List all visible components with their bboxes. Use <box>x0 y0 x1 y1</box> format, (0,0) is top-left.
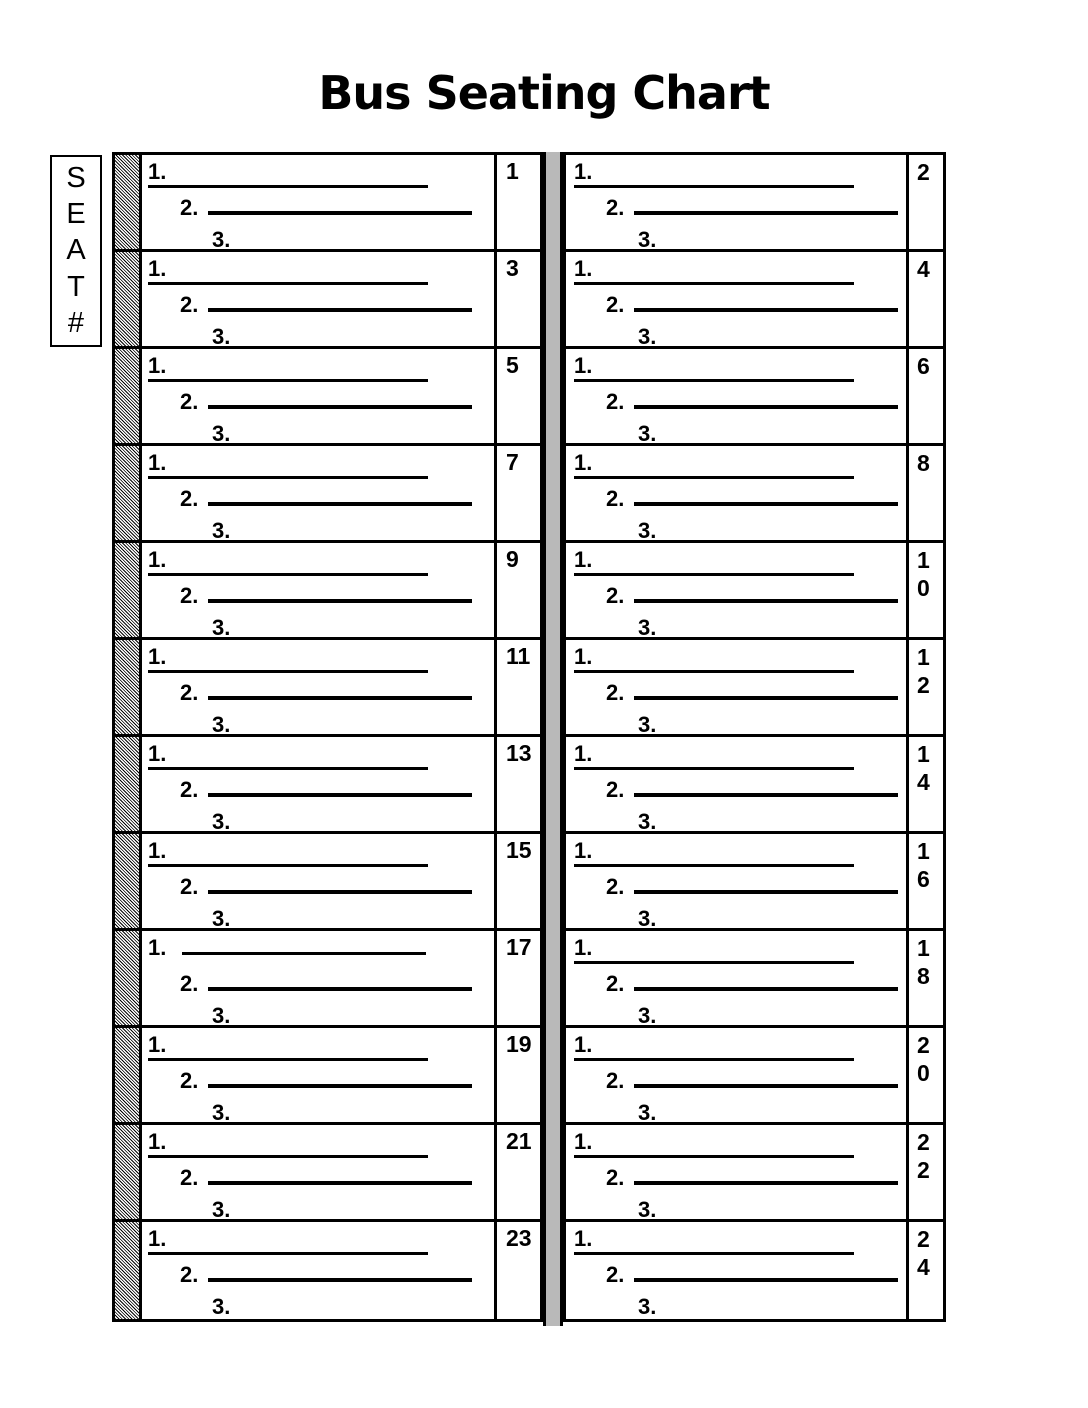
seat-line-2: 2. <box>606 290 906 324</box>
line-label: 1. <box>574 256 592 281</box>
name-blank-line: 1. <box>574 547 854 576</box>
bus-aisle <box>543 152 563 1326</box>
line-label: 1. <box>148 838 166 863</box>
seat-row: 1.2.3.2 0 <box>566 1028 943 1125</box>
seat-line-1: 1. <box>574 1226 906 1260</box>
driver-side-hatch-strip <box>115 834 142 928</box>
line-label: 1. <box>148 256 166 281</box>
line-label: 1. <box>148 547 166 572</box>
line-label: 3. <box>212 712 230 737</box>
seat-row: 1.2.3.1 4 <box>566 737 943 834</box>
seat-row: 1.2.3.1 <box>115 155 540 252</box>
name-blank-line: 1. <box>574 644 854 673</box>
name-blank-line <box>208 775 472 797</box>
line-label: 1. <box>148 1226 166 1251</box>
seat-box: 1.2.3. <box>142 1222 494 1319</box>
name-blank-line <box>208 1163 472 1185</box>
name-blank-line <box>208 872 472 894</box>
line-label: 3. <box>212 324 230 349</box>
name-blank-line: 1. <box>148 1032 428 1061</box>
name-blank-line <box>208 1066 472 1088</box>
name-blank-line <box>634 290 898 312</box>
seat-legend-letter: E <box>66 200 85 229</box>
seat-line-2: 2. <box>606 1066 906 1100</box>
seat-line-2: 2. <box>180 484 494 518</box>
name-blank-line: 1. <box>574 1129 854 1158</box>
name-blank-line: 1. <box>574 1032 854 1061</box>
seat-box: 1.2.3. <box>566 737 906 831</box>
line-label: 1. <box>574 741 592 766</box>
seat-line-1: 1. <box>574 935 906 969</box>
seat-line-1: 1. <box>574 838 906 872</box>
seat-row: 1.2.3.7 <box>115 446 540 543</box>
seat-row: 1.2.3.5 <box>115 349 540 446</box>
line-label: 3. <box>212 906 230 931</box>
line-label: 3. <box>638 1294 656 1319</box>
line-label: 1. <box>574 1129 592 1154</box>
seat-line-2: 2. <box>606 969 906 1003</box>
name-blank-line: 1. <box>148 1226 428 1255</box>
seat-box: 1.2.3. <box>566 543 906 637</box>
name-blank-line <box>634 678 898 700</box>
seat-row: 1.2.3.1 2 <box>566 640 943 737</box>
name-blank-line: 1. <box>574 741 854 770</box>
line-label: 2. <box>606 777 624 802</box>
seat-line-1: 1. <box>574 547 906 581</box>
name-blank-line: 1. <box>574 935 854 964</box>
seat-line-2: 2. <box>180 193 494 227</box>
seat-line-1: 1. <box>574 159 906 193</box>
seat-line-1: 1. <box>574 1129 906 1163</box>
seat-row: 1.2.3.6 <box>566 349 943 446</box>
line-label: 1. <box>574 450 592 475</box>
seating-chart: 1.2.3.11.2.3.31.2.3.51.2.3.71.2.3.91.2.3… <box>112 152 946 1322</box>
name-blank-line <box>208 484 472 506</box>
seat-number: 6 <box>906 349 943 443</box>
seat-line-1: 1. <box>148 450 494 484</box>
seat-number: 11 <box>494 640 540 734</box>
name-blank-line: 1. <box>148 838 428 867</box>
name-blank-line <box>634 484 898 506</box>
line-label: 3. <box>212 421 230 446</box>
line-label: 3. <box>212 1100 230 1125</box>
seat-number: 15 <box>494 834 540 928</box>
line-label: 2. <box>606 1262 624 1287</box>
line-label: 3. <box>212 1294 230 1319</box>
seat-line-3: 3. <box>638 1294 906 1328</box>
name-blank-line <box>208 581 472 603</box>
driver-side-hatch-strip <box>115 640 142 734</box>
seat-box: 1.2.3. <box>142 640 494 734</box>
line-label: 2. <box>606 874 624 899</box>
seat-row: 1.2.3.2 4 <box>566 1222 943 1319</box>
line-label: 2. <box>180 1068 198 1093</box>
seat-line-1: 1. <box>148 353 494 387</box>
seat-number: 1 4 <box>906 737 943 831</box>
line-label: 3. <box>638 1003 656 1028</box>
seat-number-legend: S E A T # <box>50 155 102 347</box>
line-label: 1. <box>574 159 592 184</box>
line-label: 2. <box>180 1165 198 1190</box>
seat-number: 4 <box>906 252 943 346</box>
name-blank-line <box>208 1260 472 1282</box>
seat-line-1: 1. <box>148 1129 494 1163</box>
name-blank-line <box>634 1260 898 1282</box>
seat-number: 13 <box>494 737 540 831</box>
seat-row: 1.2.3.19 <box>115 1028 540 1125</box>
seat-line-1: 1. <box>574 741 906 775</box>
seat-box: 1.2.3. <box>142 1125 494 1219</box>
name-blank-line: 1. <box>574 1226 854 1255</box>
line-label: 1. <box>148 1032 166 1057</box>
seat-box: 1.2.3. <box>566 1222 906 1319</box>
driver-side-hatch-strip <box>115 1222 142 1319</box>
line-label: 2. <box>180 1262 198 1287</box>
driver-side-hatch-strip <box>115 1028 142 1122</box>
seat-row: 1.2.3.1 6 <box>566 834 943 931</box>
line-label: 3. <box>638 712 656 737</box>
seat-line-2: 2. <box>606 387 906 421</box>
name-blank-line <box>208 678 472 700</box>
name-blank-line <box>634 1163 898 1185</box>
driver-side-hatch-strip <box>115 155 142 249</box>
line-label: 3. <box>638 615 656 640</box>
line-label: 2. <box>606 971 624 996</box>
seat-legend-letter: # <box>68 309 84 338</box>
seat-line-1: 1. <box>574 450 906 484</box>
name-blank-line: 1. <box>148 353 428 382</box>
seat-box: 1.2.3. <box>566 640 906 734</box>
seat-number: 17 <box>494 931 540 1025</box>
line-label: 2. <box>180 680 198 705</box>
seat-line-2: 2. <box>606 1163 906 1197</box>
seat-line-1: 1. <box>574 1032 906 1066</box>
driver-side-hatch-strip <box>115 349 142 443</box>
seat-line-2: 2. <box>180 290 494 324</box>
seat-box: 1.2.3. <box>566 1125 906 1219</box>
name-blank-line: 1. <box>574 353 854 382</box>
line-label: 1. <box>574 838 592 863</box>
seat-number: 5 <box>494 349 540 443</box>
seat-box: 1.2.3. <box>142 349 494 443</box>
line-label: 2. <box>606 292 624 317</box>
seat-line-1: 1. <box>574 256 906 290</box>
seat-box: 1.2.3. <box>566 1028 906 1122</box>
line-label: 1. <box>574 644 592 669</box>
seat-number: 1 <box>494 155 540 249</box>
seat-row: 1.2.3.9 <box>115 543 540 640</box>
seat-line-1: 1. <box>148 644 494 678</box>
name-blank-line <box>634 387 898 409</box>
line-label: 1. <box>574 1032 592 1057</box>
seat-row: 1.2.3.2 2 <box>566 1125 943 1222</box>
line-label: 3. <box>638 518 656 543</box>
driver-side-hatch-strip <box>115 1125 142 1219</box>
seat-line-2: 2. <box>180 1066 494 1100</box>
seat-line-2: 2. <box>180 581 494 615</box>
seat-line-1: 1. <box>148 1226 494 1260</box>
name-blank-line: 1. <box>148 159 428 188</box>
seat-number: 1 8 <box>906 931 943 1025</box>
line-label: 1. <box>574 935 592 960</box>
name-blank-line: 1. <box>148 1129 428 1158</box>
line-label: 2. <box>180 292 198 317</box>
seat-line-2: 2. <box>180 872 494 906</box>
seat-line-1: 1. <box>574 644 906 678</box>
line-label: 3. <box>212 227 230 252</box>
seat-box: 1.2.3. <box>142 155 494 249</box>
seat-row: 1.2.3.15 <box>115 834 540 931</box>
line-label: 1. <box>148 644 166 669</box>
name-blank-line: 1. <box>148 644 428 673</box>
seat-line-2: 2. <box>180 1260 494 1294</box>
line-label: 1. <box>148 741 166 766</box>
name-blank-line: 1. <box>574 838 854 867</box>
seat-line-1: 1. <box>148 547 494 581</box>
name-blank-line <box>634 193 898 215</box>
line-label: 3. <box>638 421 656 446</box>
seat-number: 2 2 <box>906 1125 943 1219</box>
seat-line-1: 1. <box>574 353 906 387</box>
driver-side-hatch-strip <box>115 737 142 831</box>
name-blank-line: 1. <box>574 159 854 188</box>
seat-line-1: 1. <box>148 838 494 872</box>
name-blank-line <box>208 193 472 215</box>
seat-box: 1.2.3. <box>566 349 906 443</box>
seat-box: 1.2.3. <box>566 155 906 249</box>
seat-line-1: 1. <box>148 935 494 969</box>
seat-box: 1.2.3. <box>566 931 906 1025</box>
left-seat-table: 1.2.3.11.2.3.31.2.3.51.2.3.71.2.3.91.2.3… <box>112 152 543 1322</box>
seat-line-2: 2. <box>606 484 906 518</box>
line-label: 2. <box>606 195 624 220</box>
seat-row: 1.2.3.8 <box>566 446 943 543</box>
driver-side-hatch-strip <box>115 252 142 346</box>
seat-legend-letter: A <box>66 236 85 265</box>
seat-line-2: 2. <box>180 678 494 712</box>
line-label: 2. <box>180 777 198 802</box>
seat-line-2: 2. <box>180 387 494 421</box>
line-label: 1. <box>574 353 592 378</box>
seat-number: 9 <box>494 543 540 637</box>
line-label: 1. <box>574 547 592 572</box>
seat-number: 2 <box>906 155 943 249</box>
seat-box: 1.2.3. <box>142 737 494 831</box>
seat-number: 1 6 <box>906 834 943 928</box>
line-label: 1. <box>148 450 166 475</box>
seat-row: 1.2.3.13 <box>115 737 540 834</box>
seat-number: 19 <box>494 1028 540 1122</box>
line-label: 1. <box>574 1226 592 1251</box>
driver-side-hatch-strip <box>115 543 142 637</box>
line-label: 2. <box>180 195 198 220</box>
driver-side-hatch-strip <box>115 446 142 540</box>
seat-row: 1.2.3.23 <box>115 1222 540 1319</box>
seat-line-2: 2. <box>180 1163 494 1197</box>
seat-box: 1.2.3. <box>566 446 906 540</box>
page-title: Bus Seating Chart <box>0 66 1088 120</box>
name-blank-line <box>208 387 472 409</box>
right-seat-table: 1.2.3.21.2.3.41.2.3.61.2.3.81.2.3.1 01.2… <box>563 152 946 1322</box>
line-label: 2. <box>180 583 198 608</box>
line-label: 2. <box>606 1068 624 1093</box>
seat-box: 1.2.3. <box>566 834 906 928</box>
line-label: 1. <box>148 159 166 184</box>
driver-side-hatch-strip <box>115 931 142 1025</box>
name-blank-line <box>634 775 898 797</box>
seat-legend-letter: T <box>67 273 85 302</box>
seat-number: 21 <box>494 1125 540 1219</box>
seat-line-1: 1. <box>148 741 494 775</box>
seat-number: 8 <box>906 446 943 540</box>
seat-box: 1.2.3. <box>142 834 494 928</box>
seat-box: 1.2.3. <box>142 543 494 637</box>
seat-line-1: 1. <box>148 1032 494 1066</box>
name-blank-line: 1. <box>148 741 428 770</box>
seat-number: 7 <box>494 446 540 540</box>
seat-box: 1.2.3. <box>142 931 494 1025</box>
seat-box: 1.2.3. <box>142 446 494 540</box>
line-label: 1. <box>148 1129 166 1154</box>
seat-row: 1.2.3.3 <box>115 252 540 349</box>
seat-legend-letter: S <box>66 164 85 193</box>
seat-box: 1.2.3. <box>142 252 494 346</box>
seat-number: 1 0 <box>906 543 943 637</box>
name-blank-line <box>182 935 426 955</box>
line-label: 1. <box>148 353 166 378</box>
seat-line-2: 2. <box>606 872 906 906</box>
seat-line-2: 2. <box>606 678 906 712</box>
line-label: 3. <box>638 906 656 931</box>
line-label: 3. <box>638 227 656 252</box>
seat-row: 1.2.3.1 8 <box>566 931 943 1028</box>
seat-row: 1.2.3.17 <box>115 931 540 1028</box>
name-blank-line: 1. <box>148 256 428 285</box>
line-label: 3. <box>212 809 230 834</box>
name-blank-line <box>634 872 898 894</box>
seat-line-3: 3. <box>212 1294 494 1328</box>
line-label: 2. <box>180 486 198 511</box>
line-label: 3. <box>212 1003 230 1028</box>
line-label: 3. <box>212 615 230 640</box>
seat-number: 1 2 <box>906 640 943 734</box>
seat-row: 1.2.3.21 <box>115 1125 540 1222</box>
line-label: 3. <box>638 324 656 349</box>
seat-line-2: 2. <box>180 969 494 1003</box>
seat-box: 1.2.3. <box>142 1028 494 1122</box>
seat-number: 23 <box>494 1222 540 1319</box>
name-blank-line: 1. <box>574 450 854 479</box>
line-label: 1. <box>148 935 166 960</box>
name-blank-line: 1. <box>148 450 428 479</box>
seat-box: 1.2.3. <box>566 252 906 346</box>
seat-line-2: 2. <box>606 1260 906 1294</box>
seat-number: 2 4 <box>906 1222 943 1319</box>
seat-line-2: 2. <box>180 775 494 809</box>
line-label: 2. <box>180 971 198 996</box>
line-label: 2. <box>606 583 624 608</box>
name-blank-line: 1. <box>148 547 428 576</box>
seat-line-2: 2. <box>606 775 906 809</box>
seat-line-2: 2. <box>606 581 906 615</box>
line-label: 3. <box>638 1197 656 1222</box>
line-label: 2. <box>180 389 198 414</box>
name-blank-line <box>208 290 472 312</box>
seat-row: 1.2.3.1 0 <box>566 543 943 640</box>
line-label: 3. <box>212 518 230 543</box>
seat-number: 2 0 <box>906 1028 943 1122</box>
line-label: 3. <box>212 1197 230 1222</box>
line-label: 2. <box>606 1165 624 1190</box>
seat-line-1: 1. <box>148 256 494 290</box>
name-blank-line <box>634 1066 898 1088</box>
line-label: 2. <box>606 389 624 414</box>
seat-row: 1.2.3.2 <box>566 155 943 252</box>
name-blank-line <box>634 969 898 991</box>
line-label: 2. <box>180 874 198 899</box>
name-blank-line <box>634 581 898 603</box>
line-label: 2. <box>606 680 624 705</box>
seat-line-1: 1. <box>148 159 494 193</box>
line-label: 3. <box>638 1100 656 1125</box>
seat-row: 1.2.3.4 <box>566 252 943 349</box>
seat-number: 3 <box>494 252 540 346</box>
line-label: 2. <box>606 486 624 511</box>
seat-row: 1.2.3.11 <box>115 640 540 737</box>
name-blank-line <box>208 969 472 991</box>
line-label: 3. <box>638 809 656 834</box>
worksheet-page: Bus Seating Chart S E A T # 1.2.3.11.2.3… <box>0 0 1088 1408</box>
seat-line-2: 2. <box>606 193 906 227</box>
name-blank-line: 1. <box>574 256 854 285</box>
